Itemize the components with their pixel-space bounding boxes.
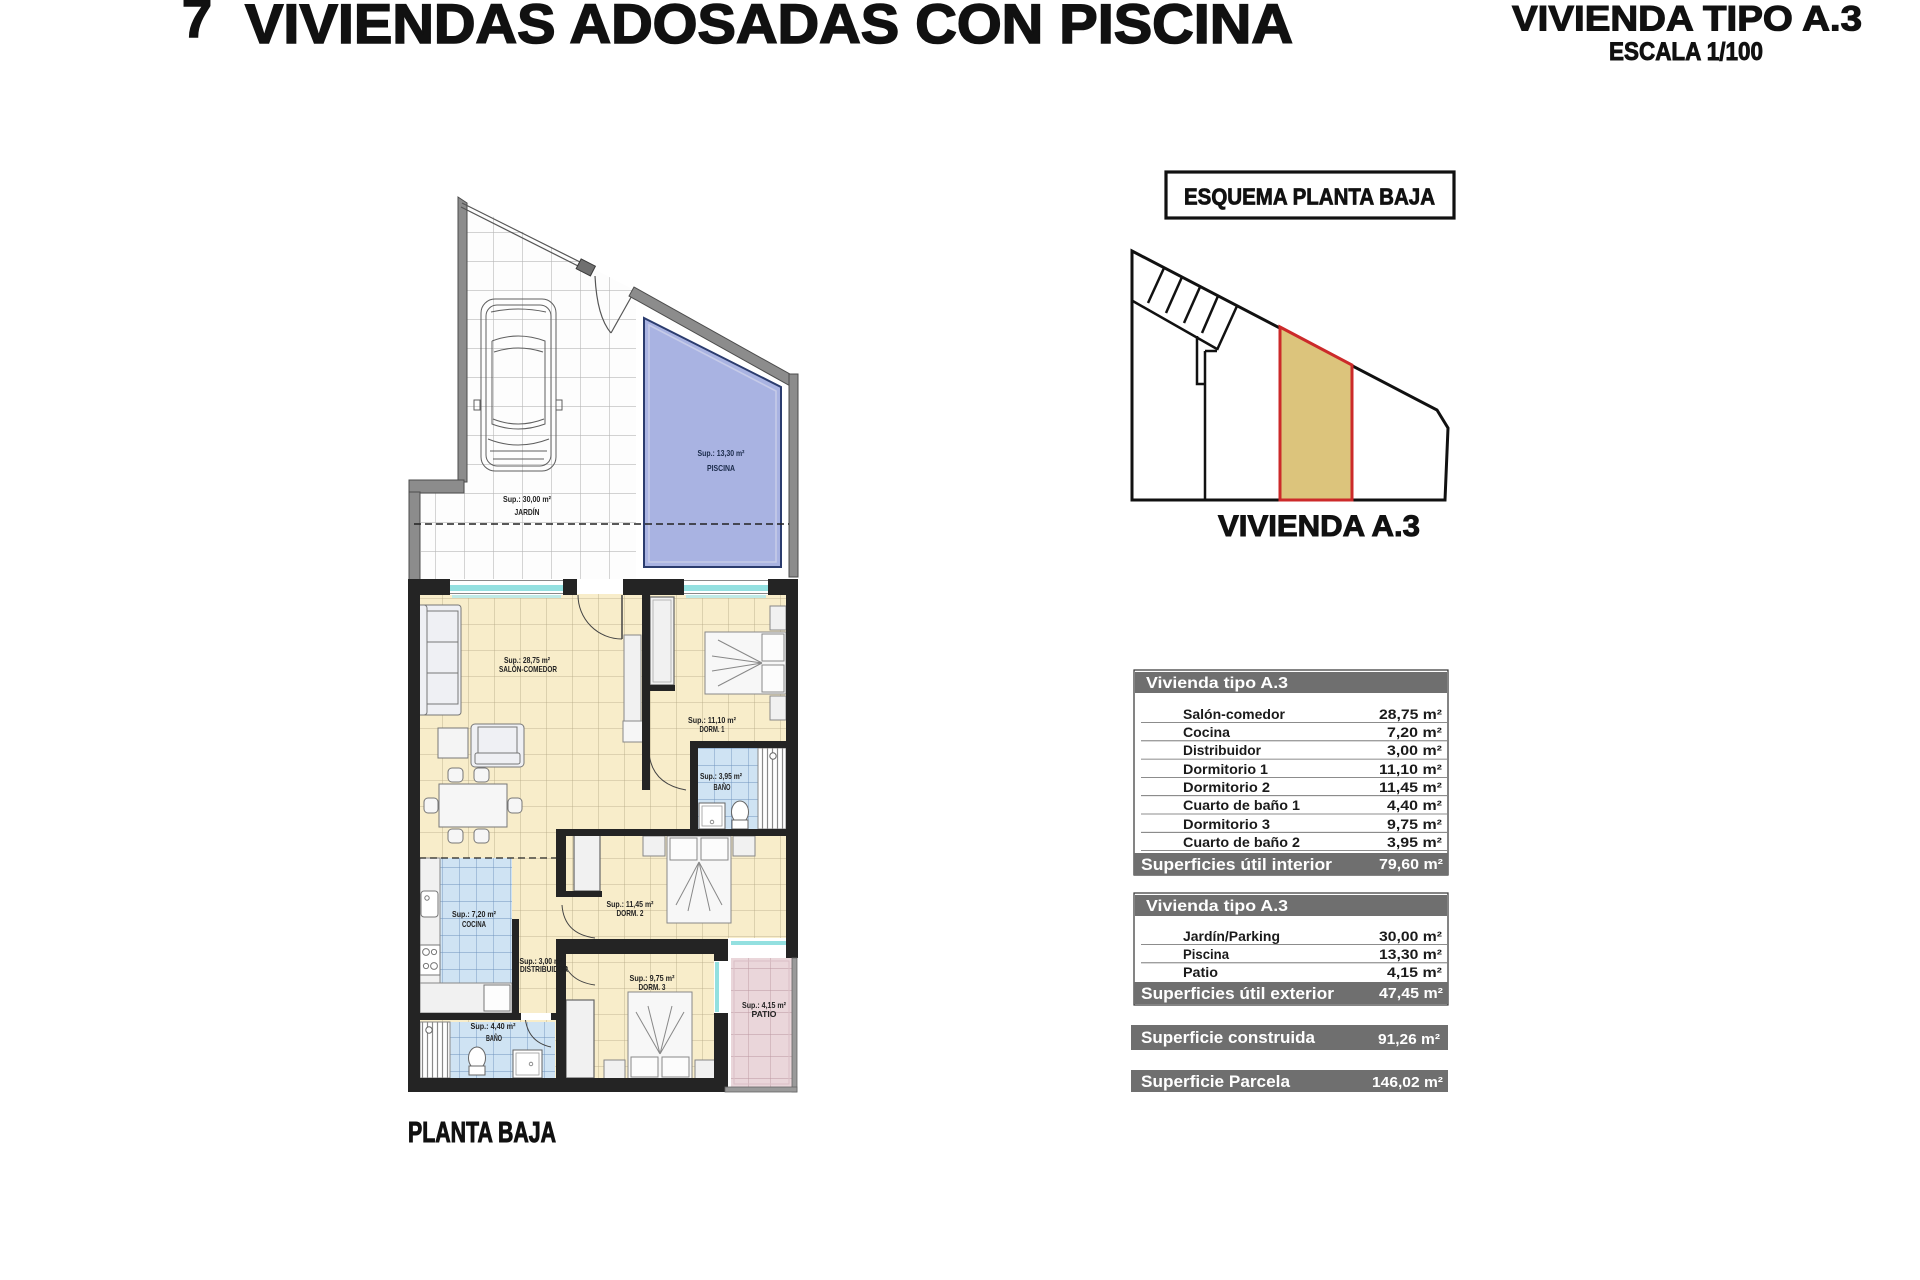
svg-text:Superficies útil interior: Superficies útil interior bbox=[1141, 856, 1333, 874]
svg-text:VIVIENDA A.3: VIVIENDA A.3 bbox=[1218, 510, 1420, 543]
svg-text:VIVIENDA TIPO A.3: VIVIENDA TIPO A.3 bbox=[1512, 0, 1862, 39]
svg-text:DISTRIBUIDOR: DISTRIBUIDOR bbox=[520, 964, 568, 974]
svg-text:Vivienda tipo A.3: Vivienda tipo A.3 bbox=[1146, 898, 1288, 915]
svg-text:28,75 m²: 28,75 m² bbox=[1379, 707, 1443, 722]
svg-text:BAÑO: BAÑO bbox=[486, 1033, 502, 1043]
svg-text:JARDÍN: JARDÍN bbox=[515, 507, 540, 517]
svg-text:ESQUEMA PLANTA BAJA: ESQUEMA PLANTA BAJA bbox=[1184, 184, 1435, 210]
svg-text:Cuarto de baño 1: Cuarto de baño 1 bbox=[1183, 798, 1301, 813]
svg-text:Dormitorio 3: Dormitorio 3 bbox=[1183, 817, 1271, 832]
svg-text:4,15 m²: 4,15 m² bbox=[1387, 965, 1443, 980]
svg-text:COCINA: COCINA bbox=[462, 919, 486, 929]
svg-text:PISCINA: PISCINA bbox=[707, 463, 735, 473]
svg-text:7,20 m²: 7,20 m² bbox=[1387, 725, 1443, 740]
svg-text:PATIO: PATIO bbox=[752, 1009, 777, 1019]
svg-text:DORM. 1: DORM. 1 bbox=[700, 724, 725, 734]
svg-text:7: 7 bbox=[182, 0, 212, 49]
svg-text:Cocina: Cocina bbox=[1183, 725, 1231, 740]
svg-text:Dormitorio 1: Dormitorio 1 bbox=[1183, 762, 1269, 777]
svg-text:3,95 m²: 3,95 m² bbox=[1387, 835, 1443, 850]
svg-text:3,00 m²: 3,00 m² bbox=[1387, 743, 1443, 758]
svg-text:Sup.: 7,20 m²: Sup.: 7,20 m² bbox=[452, 909, 496, 919]
svg-text:Jardín/Parking: Jardín/Parking bbox=[1183, 929, 1280, 944]
svg-text:VIVIENDAS ADOSADAS CON PISCINA: VIVIENDAS ADOSADAS CON PISCINA bbox=[245, 0, 1293, 55]
svg-text:Piscina: Piscina bbox=[1183, 947, 1229, 962]
svg-text:Superficie Parcela: Superficie Parcela bbox=[1141, 1073, 1291, 1091]
svg-text:Dormitorio 2: Dormitorio 2 bbox=[1183, 780, 1270, 795]
svg-text:4,40 m²: 4,40 m² bbox=[1387, 798, 1443, 813]
svg-text:SALÓN-COMEDOR: SALÓN-COMEDOR bbox=[499, 663, 557, 674]
svg-text:9,75 m²: 9,75 m² bbox=[1387, 817, 1443, 832]
svg-text:Vivienda tipo A.3: Vivienda tipo A.3 bbox=[1146, 675, 1288, 692]
svg-text:11,45 m²: 11,45 m² bbox=[1379, 780, 1443, 795]
svg-text:DORM. 3: DORM. 3 bbox=[639, 982, 666, 992]
svg-text:146,02 m²: 146,02 m² bbox=[1372, 1075, 1443, 1091]
svg-text:Patio: Patio bbox=[1183, 965, 1218, 980]
svg-text:Sup.: 3,95 m²: Sup.: 3,95 m² bbox=[700, 771, 742, 781]
svg-text:91,26 m²: 91,26 m² bbox=[1378, 1032, 1440, 1048]
svg-text:Distribuidor: Distribuidor bbox=[1183, 743, 1262, 758]
svg-text:Superficie construida: Superficie construida bbox=[1141, 1029, 1316, 1047]
svg-text:Sup.: 13,30 m²: Sup.: 13,30 m² bbox=[698, 448, 745, 458]
svg-text:79,60 m²: 79,60 m² bbox=[1379, 857, 1443, 873]
svg-text:ESCALA 1/100: ESCALA 1/100 bbox=[1609, 38, 1763, 66]
svg-text:Cuarto de baño 2: Cuarto de baño 2 bbox=[1183, 835, 1300, 850]
svg-text:13,30 m²: 13,30 m² bbox=[1379, 947, 1443, 962]
svg-text:47,45 m²: 47,45 m² bbox=[1379, 986, 1443, 1002]
svg-text:PLANTA BAJA: PLANTA BAJA bbox=[408, 1117, 556, 1149]
svg-text:DORM. 2: DORM. 2 bbox=[617, 908, 644, 918]
svg-text:Salón-comedor: Salón-comedor bbox=[1183, 707, 1286, 722]
svg-text:BAÑO: BAÑO bbox=[714, 782, 731, 792]
svg-text:30,00 m²: 30,00 m² bbox=[1379, 929, 1443, 944]
svg-text:Sup.: 30,00 m²: Sup.: 30,00 m² bbox=[503, 494, 551, 504]
svg-text:11,10 m²: 11,10 m² bbox=[1379, 762, 1443, 777]
svg-text:Sup.: 4,40 m²: Sup.: 4,40 m² bbox=[471, 1021, 516, 1031]
svg-text:Superficies útil exterior: Superficies útil exterior bbox=[1141, 985, 1335, 1003]
